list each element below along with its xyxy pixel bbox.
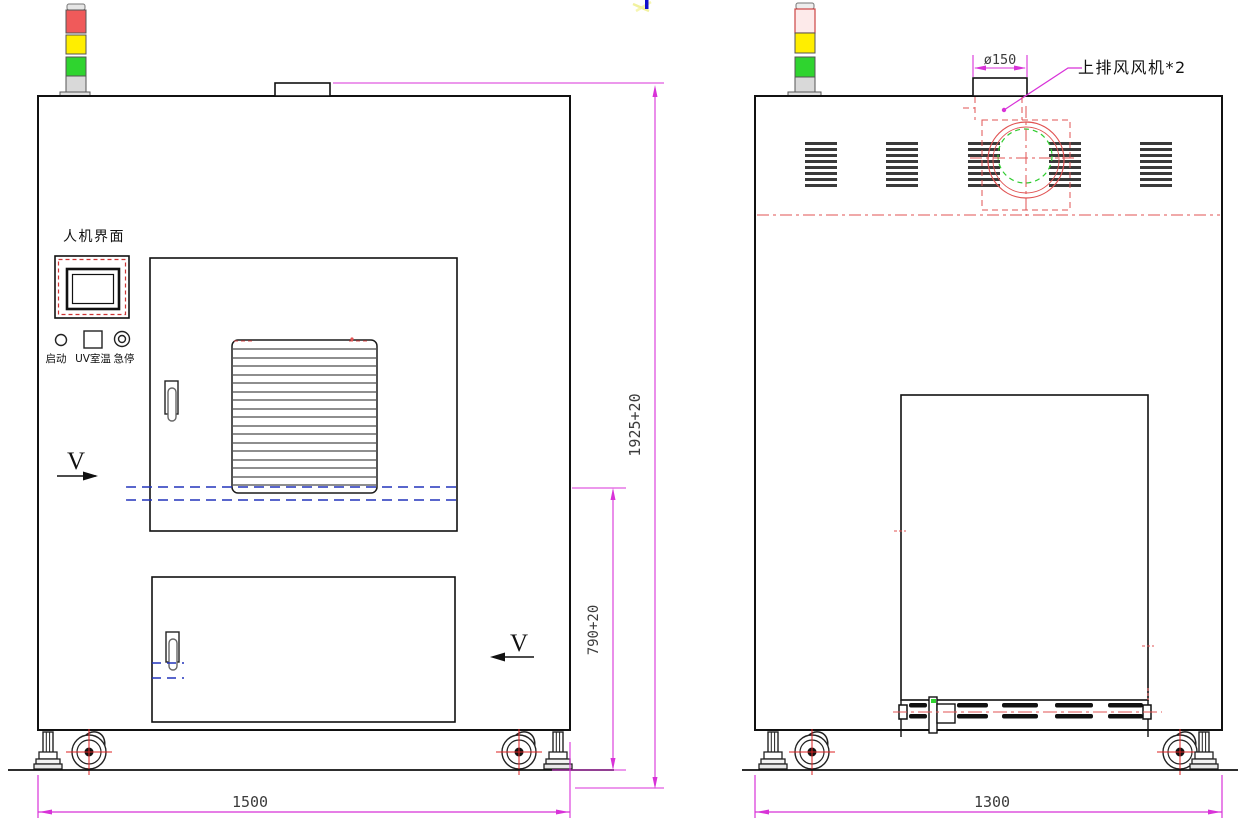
signal-tower-icon	[60, 4, 90, 98]
estop-button[interactable]	[115, 332, 130, 347]
start-button-label: 启动	[46, 352, 67, 365]
leveling-foot-icon	[34, 732, 62, 769]
dim-width-1300: 1300	[755, 775, 1222, 818]
side-view: ø150 上排风风机*2	[742, 3, 1238, 818]
hmi-panel[interactable]	[55, 256, 129, 318]
section-v-right-label: V	[510, 630, 528, 657]
dim-duct-value: ø150	[984, 52, 1017, 68]
start-button[interactable]	[56, 335, 67, 346]
dim-opening-value: 790+20	[586, 605, 602, 656]
uv-temp-indicator[interactable]	[84, 331, 102, 348]
dim-height-value: 1925+20	[626, 393, 644, 456]
leveling-foot-icon	[544, 732, 572, 769]
tower-green-lamp	[66, 57, 86, 76]
technical-drawing: 人机界面 启动 UV室温 急停	[0, 0, 1238, 824]
tower-green-lamp	[795, 57, 815, 77]
caster-wheel-icon	[496, 729, 542, 775]
drawing-svg: 人机界面 启动 UV室温 急停	[0, 0, 1238, 824]
lower-door[interactable]	[152, 577, 455, 722]
uv-temp-label: UV室温	[75, 352, 111, 365]
dim-duct-150: ø150	[973, 52, 1027, 77]
signal-tower-side-icon	[788, 3, 821, 98]
dim-width-1500: 1500	[38, 775, 570, 818]
section-v-left-label: V	[67, 448, 85, 475]
leveling-foot-icon	[759, 732, 787, 769]
tower-red-lamp	[795, 9, 815, 33]
caster-wheel-icon	[789, 729, 835, 775]
fan-callout-label: 上排风风机*2	[1078, 58, 1187, 77]
artifact-mark	[633, 0, 651, 11]
shutter-vent	[232, 337, 377, 493]
dim-width-front-value: 1500	[232, 793, 268, 811]
tower-yellow-lamp	[66, 35, 86, 54]
hmi-label: 人机界面	[63, 229, 125, 245]
tower-yellow-lamp	[795, 33, 815, 53]
front-view: 人机界面 启动 UV室温 急停	[8, 4, 664, 818]
top-duct-stub-front	[275, 83, 330, 96]
rear-door[interactable]	[894, 395, 1154, 737]
tower-red-lamp	[66, 10, 86, 33]
caster-wheel-icon	[66, 729, 112, 775]
dim-width-side-value: 1300	[974, 793, 1010, 811]
exhaust-duct-stub	[973, 78, 1027, 96]
estop-label: 急停	[114, 352, 135, 365]
